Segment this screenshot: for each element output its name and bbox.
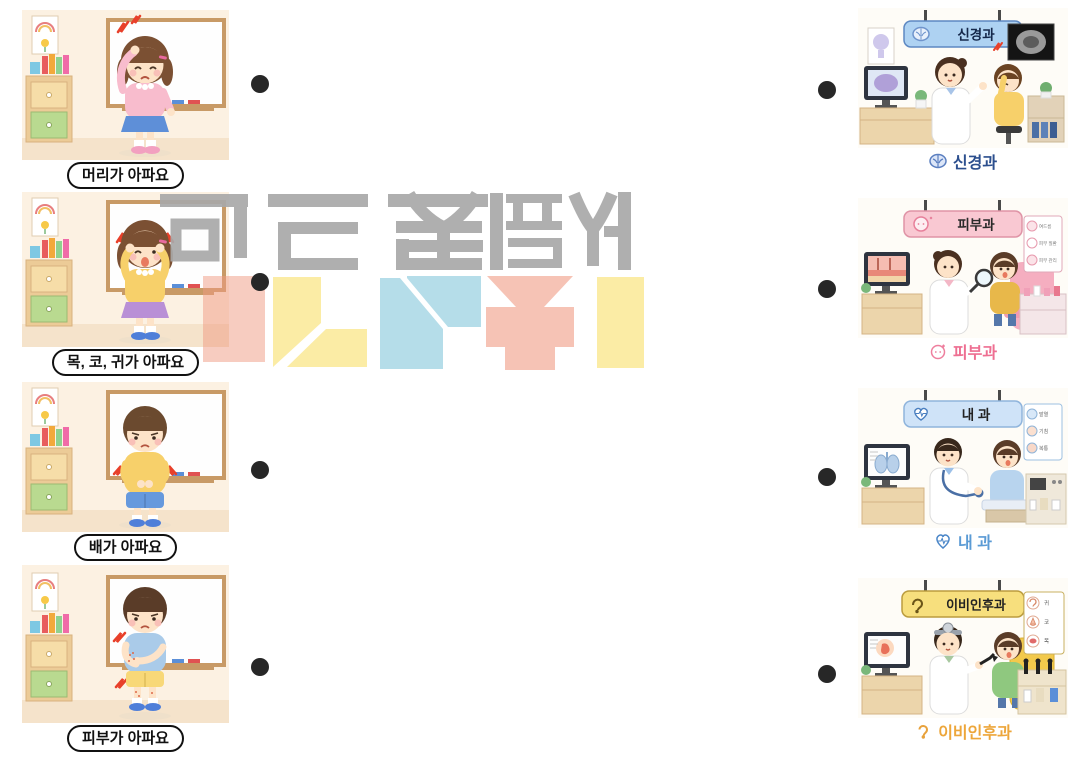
department-card-ent[interactable]: 이비인후과 [858,578,1068,744]
chart-item-text: 발열 [1039,411,1049,418]
heart-ekg-icon [934,532,952,550]
chart-item-text: 목 [1044,638,1049,645]
department-caption-text: 이비인후과 [938,719,1012,743]
department-caption-internal: 내 과 [858,528,1068,554]
chart-item-text: 피부 질환 [1039,240,1057,247]
department-card-internal[interactable]: 내 과 발 [858,388,1068,554]
department-card-dermatology[interactable]: 피부과 여드름 피부 질환 [858,198,1068,364]
ear-icon [914,722,932,740]
face-icon [929,342,947,360]
worksheet-page: 머리가 아파요 [0,0,1076,760]
department-caption-neurology: 신경과 [858,148,1068,174]
clinic-illustration-dermatology: 피부과 여드름 피부 질환 [858,198,1068,338]
sign-text: 이비인후과 [946,598,1006,613]
symptom-label-ears: 목, 코, 귀가 아파요 [52,349,199,376]
department-caption-text: 신경과 [953,149,997,173]
symptom-label-text: 머리가 아파요 [82,167,169,184]
watermark-flipped-text [160,192,631,270]
department-caption-text: 내 과 [958,529,992,553]
match-dot-right-2[interactable] [818,280,836,298]
classroom-illustration-earache [22,192,229,347]
classroom-illustration-stomachache [22,382,229,532]
symptom-label-skin: 피부가 아파요 [67,725,184,752]
clinic-illustration-ent: 이비인후과 [858,578,1068,718]
chart-item-text: 귀 [1044,600,1049,607]
match-dot-left-3[interactable] [251,461,269,479]
symptom-label-stomach: 배가 아파요 [74,534,177,561]
symptom-card-stomach[interactable]: 배가 아파요 [22,382,229,561]
match-dot-right-3[interactable] [818,468,836,486]
department-caption-text: 피부과 [953,339,997,363]
department-caption-ent: 이비인후과 [858,718,1068,744]
match-dot-left-1[interactable] [251,75,269,93]
classroom-illustration-headache [22,10,229,160]
match-dot-left-2[interactable] [251,273,269,291]
symptom-card-head[interactable]: 머리가 아파요 [22,10,229,189]
sign-text: 피부과 [957,218,995,233]
chart-item-text: 기침 [1039,428,1048,435]
clinic-illustration-internal: 내 과 발 [858,388,1068,528]
chart-item-text: 피부 관리 [1039,257,1057,264]
classroom-illustration-skin [22,565,229,723]
symptom-label-text: 피부가 아파요 [82,730,169,747]
sign-text: 내 과 [962,408,991,423]
symptom-card-skin[interactable]: 피부가 아파요 [22,565,229,752]
brain-icon [913,28,929,41]
brain-icon [929,152,947,170]
symptom-card-ears[interactable]: 목, 코, 귀가 아파요 [22,192,229,376]
match-dot-left-4[interactable] [251,658,269,676]
watermark-color-blocks [203,276,644,370]
sign-text: 신경과 [957,27,995,43]
symptom-label-text: 목, 코, 귀가 아파요 [67,354,184,371]
chart-item-text: 복통 [1039,446,1049,452]
clinic-illustration-neurology: 신경과 [858,8,1068,148]
chart-item-text: 코 [1044,619,1049,626]
symptom-label-text: 배가 아파요 [89,539,162,556]
match-dot-right-4[interactable] [818,665,836,683]
chart-item-text: 여드름 [1039,223,1051,230]
department-caption-dermatology: 피부과 [858,338,1068,364]
symptom-label-head: 머리가 아파요 [67,162,184,189]
match-dot-right-1[interactable] [818,81,836,99]
site-watermark [160,190,660,375]
department-card-neurology[interactable]: 신경과 [858,8,1068,174]
